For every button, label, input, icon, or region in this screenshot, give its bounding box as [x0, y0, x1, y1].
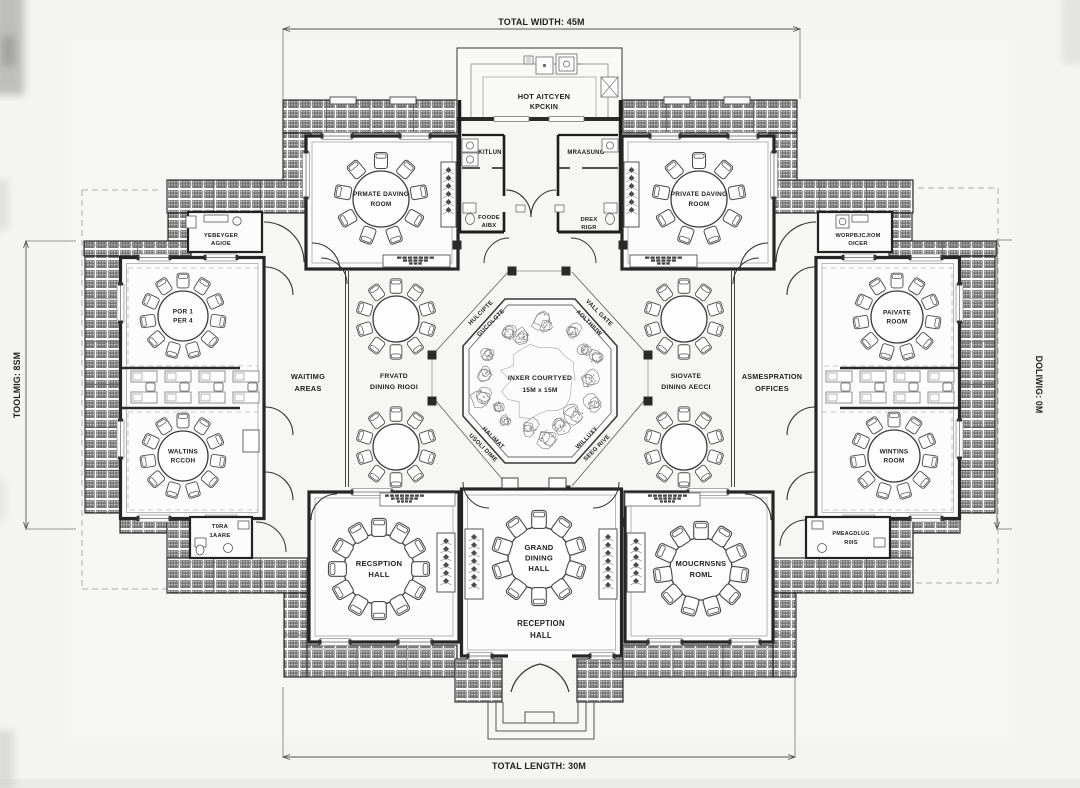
svg-text:YEBEYGER: YEBEYGER — [204, 233, 239, 239]
svg-text:DINING: DINING — [525, 554, 553, 563]
svg-text:PER 4: PER 4 — [173, 318, 193, 325]
svg-text:SIOVATE: SIOVATE — [671, 373, 702, 380]
svg-text:WORPBJCJIOM: WORPBJCJIOM — [835, 233, 880, 239]
svg-text:KITLUN: KITLUN — [478, 150, 502, 156]
svg-text:GRAND: GRAND — [524, 543, 553, 552]
svg-text:WALTINS: WALTINS — [168, 449, 199, 456]
svg-text:HOT AITCYEN: HOT AITCYEN — [518, 92, 571, 101]
svg-text:PMEAGDLUG: PMEAGDLUG — [832, 531, 869, 537]
svg-text:PAIVATE: PAIVATE — [883, 310, 912, 317]
svg-text:FRVATD: FRVATD — [380, 373, 408, 380]
svg-text:ROOM: ROOM — [371, 201, 392, 208]
svg-text:OICER: OICER — [848, 241, 868, 247]
svg-text:MRAASUNG: MRAASUNG — [567, 150, 604, 156]
svg-text:DINING RIOOI: DINING RIOOI — [370, 384, 418, 391]
svg-text:1AARE: 1AARE — [210, 533, 231, 539]
svg-text:RCCOH: RCCOH — [171, 458, 196, 465]
svg-text:ROOM: ROOM — [884, 458, 905, 465]
svg-text:FOODE: FOODE — [478, 215, 500, 221]
svg-text:DOLIWIG: 0M: DOLIWIG: 0M — [1034, 356, 1044, 414]
svg-text:T0RA: T0RA — [212, 524, 229, 530]
svg-text:HALL: HALL — [528, 564, 549, 573]
svg-text:DREX: DREX — [580, 217, 597, 223]
svg-text:ROOM: ROOM — [887, 319, 908, 326]
svg-text:15M x 15M: 15M x 15M — [522, 387, 557, 394]
svg-text:AREAS: AREAS — [294, 384, 321, 393]
svg-text:RECSPTION: RECSPTION — [356, 559, 403, 568]
svg-text:TOTAL LENGTH: 30M: TOTAL LENGTH: 30M — [492, 761, 586, 771]
svg-text:PRMATE DAVING: PRMATE DAVING — [353, 191, 409, 198]
svg-text:ROOM: ROOM — [689, 201, 710, 208]
svg-text:TOTAL WIDTH: 45M: TOTAL WIDTH: 45M — [498, 17, 584, 27]
svg-text:R0IS: R0IS — [844, 540, 857, 546]
svg-text:PRIVATE DAVING: PRIVATE DAVING — [671, 191, 727, 198]
svg-text:HALL: HALL — [368, 570, 389, 579]
svg-text:HALL: HALL — [530, 631, 552, 640]
svg-text:WAITIMG: WAITIMG — [291, 372, 325, 381]
svg-text:POR 1: POR 1 — [173, 309, 194, 316]
svg-text:MOUCRNSNS: MOUCRNSNS — [676, 559, 727, 568]
svg-text:OFFICES: OFFICES — [755, 384, 789, 393]
svg-text:INXER COURTYED: INXER COURTYED — [508, 375, 572, 382]
svg-text:WINTINS: WINTINS — [880, 449, 909, 456]
svg-text:AGIOE: AGIOE — [211, 241, 231, 247]
svg-text:ASMESPRATION: ASMESPRATION — [742, 372, 802, 381]
svg-text:RIGR: RIGR — [581, 225, 597, 231]
svg-text:ROML: ROML — [690, 570, 713, 579]
svg-text:DINING AECCI: DINING AECCI — [661, 384, 711, 391]
svg-text:AIBX: AIBX — [482, 223, 497, 229]
svg-text:KPCKIN: KPCKIN — [530, 104, 558, 111]
svg-text:TOOLMIG: 8SM: TOOLMIG: 8SM — [12, 352, 22, 418]
svg-text:RECEPTION: RECEPTION — [517, 619, 565, 628]
